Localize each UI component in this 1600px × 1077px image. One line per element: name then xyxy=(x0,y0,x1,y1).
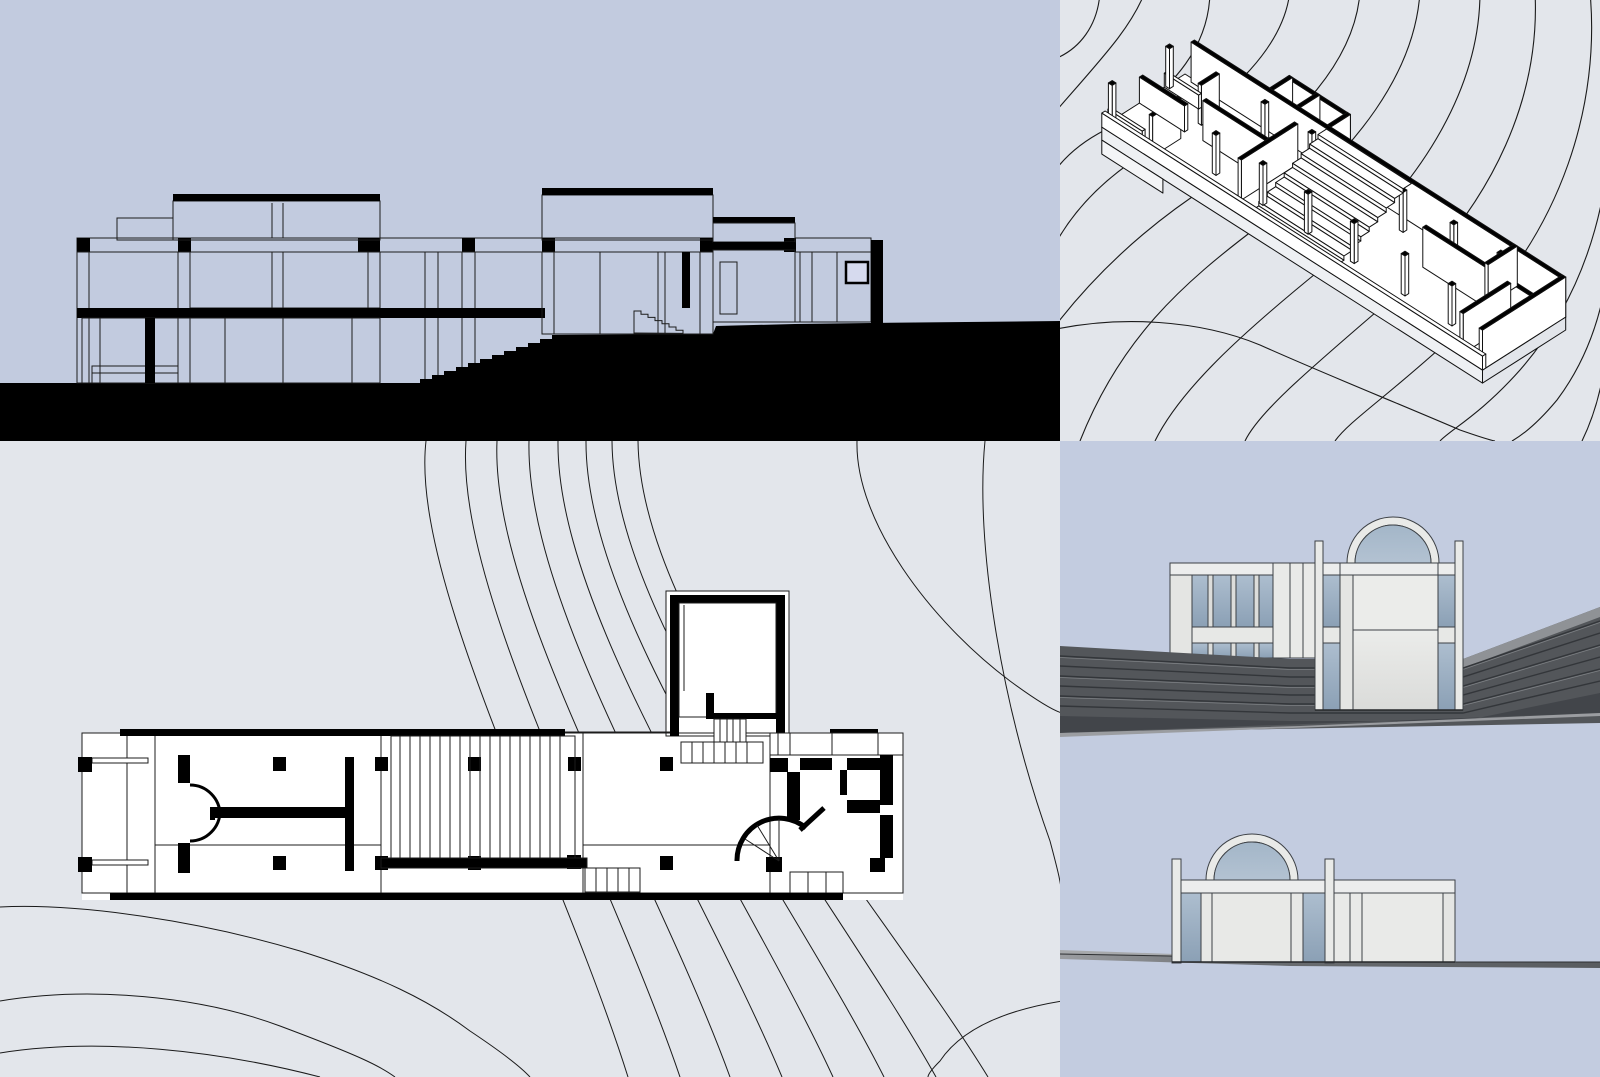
interior-wall xyxy=(345,757,354,871)
right-pavilion-upper xyxy=(542,188,713,240)
roof-band xyxy=(1172,880,1455,893)
left-glazed-block xyxy=(1170,563,1317,658)
annex xyxy=(713,217,883,324)
pilaster xyxy=(1325,859,1334,963)
right-pavilion-hall xyxy=(542,252,713,334)
interior-wall xyxy=(214,807,352,818)
elevation-drawings xyxy=(1060,441,1600,1077)
side-building xyxy=(1172,834,1455,963)
pilaster xyxy=(1455,541,1463,710)
entry-elevation xyxy=(1060,517,1600,737)
left-pavilion-upper xyxy=(117,194,380,240)
floor-plan-drawing xyxy=(0,441,1060,1077)
pilaster xyxy=(1172,859,1181,963)
drawing-board xyxy=(0,0,1600,1077)
panel-elevations xyxy=(1060,441,1600,1077)
panel-site-section xyxy=(0,0,1060,441)
side-elevation xyxy=(1060,834,1600,968)
ground-poche xyxy=(0,321,1060,441)
axonometric-drawing xyxy=(1060,0,1600,441)
south-terrace-edge xyxy=(110,893,843,900)
panel-floor-plan xyxy=(0,441,1060,1077)
site-section-drawing xyxy=(0,0,1060,441)
pilaster xyxy=(1315,541,1323,710)
arched-tower-group xyxy=(1315,517,1463,710)
panel-axonometric xyxy=(1060,0,1600,441)
